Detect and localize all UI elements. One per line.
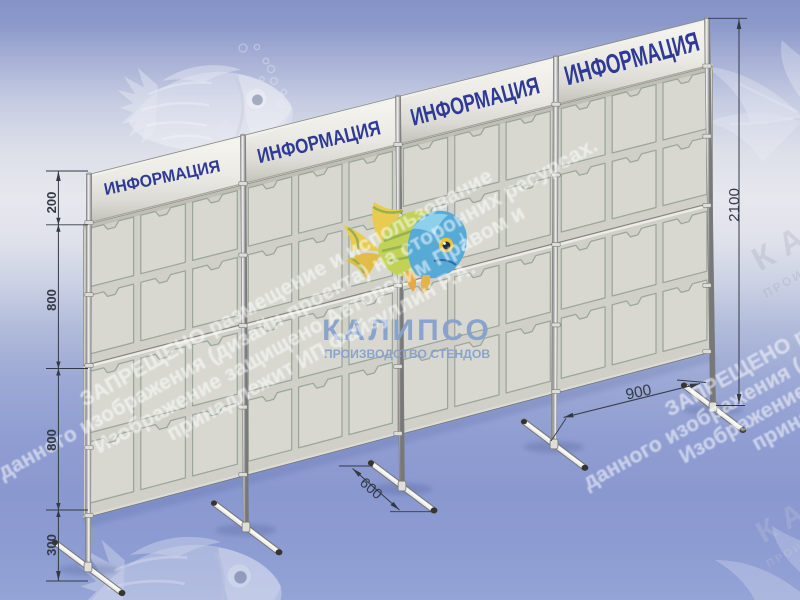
svg-text:900: 900	[624, 382, 653, 404]
svg-text:200: 200	[44, 192, 59, 214]
svg-text:600: 600	[356, 475, 385, 503]
svg-text:800: 800	[44, 429, 59, 451]
svg-text:300: 300	[44, 534, 59, 556]
svg-text:2100: 2100	[726, 188, 743, 222]
svg-text:ПРОИЗВОДСТВО СТЕНДОВ: ПРОИЗВОДСТВО СТЕНДОВ	[324, 347, 490, 361]
svg-text:КАЛИПСО: КАЛИПСО	[745, 132, 800, 278]
svg-text:800: 800	[44, 289, 59, 311]
